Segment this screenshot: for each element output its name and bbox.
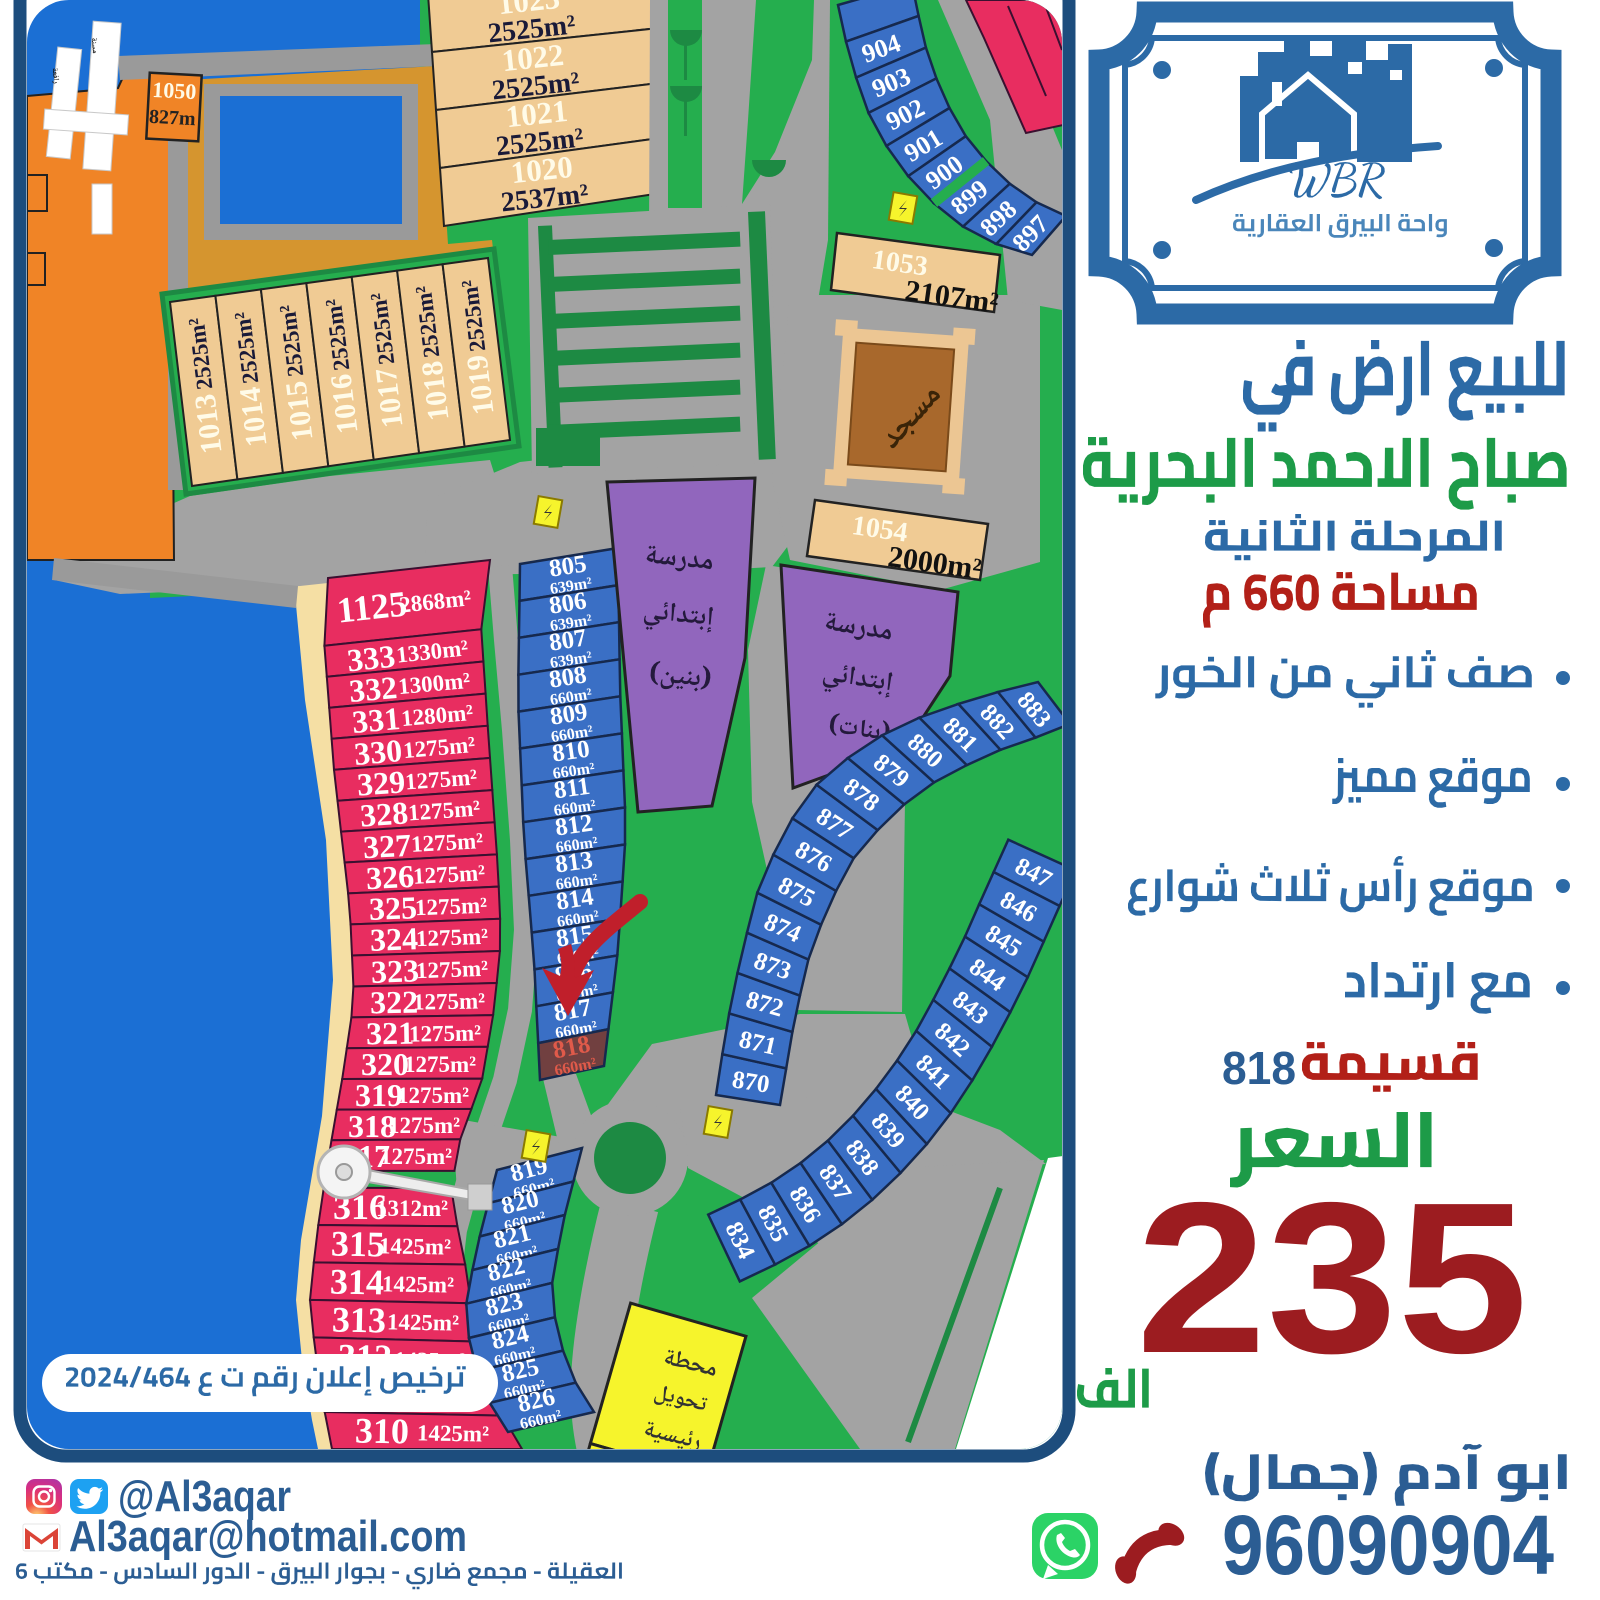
svg-text:1275m²: 1275m² xyxy=(413,988,486,1014)
svg-text:1275m²: 1275m² xyxy=(416,924,489,952)
svg-text:1275m²: 1275m² xyxy=(412,860,485,889)
svg-text:1125: 1125 xyxy=(335,583,409,630)
svg-text:1425m²: 1425m² xyxy=(417,1420,490,1446)
svg-text:1275m²: 1275m² xyxy=(410,828,483,857)
svg-text:1275m²: 1275m² xyxy=(416,956,489,984)
svg-text:310: 310 xyxy=(355,1411,410,1452)
svg-text:1425m²: 1425m² xyxy=(387,1309,460,1335)
svg-text:314: 314 xyxy=(330,1262,385,1303)
svg-text:1275m²: 1275m² xyxy=(397,1083,469,1108)
svg-text:1275m²: 1275m² xyxy=(404,1052,476,1077)
svg-text:Al3aqar@hotmail.com: Al3aqar@hotmail.com xyxy=(69,1512,467,1561)
svg-text:1312m²: 1312m² xyxy=(376,1196,448,1221)
svg-text:1425m²: 1425m² xyxy=(382,1271,455,1297)
svg-text:1275m²: 1275m² xyxy=(404,765,478,795)
svg-text:818: 818 xyxy=(1222,1042,1296,1094)
svg-text:1275m²: 1275m² xyxy=(409,1020,482,1046)
svg-text:1050: 1050 xyxy=(152,77,197,104)
svg-text:1275m²: 1275m² xyxy=(415,893,488,921)
svg-text:96090904: 96090904 xyxy=(1222,1498,1554,1592)
svg-text:1275m²: 1275m² xyxy=(380,1144,452,1169)
svg-text:235: 235 xyxy=(1136,1157,1528,1398)
svg-text:313: 313 xyxy=(332,1300,387,1341)
svg-text:827m: 827m xyxy=(148,106,196,130)
svg-text:1275m²: 1275m² xyxy=(388,1113,460,1138)
svg-text:1275m²: 1275m² xyxy=(407,796,481,826)
svg-text:1425m²: 1425m² xyxy=(379,1233,452,1259)
svg-text:315: 315 xyxy=(331,1224,386,1265)
